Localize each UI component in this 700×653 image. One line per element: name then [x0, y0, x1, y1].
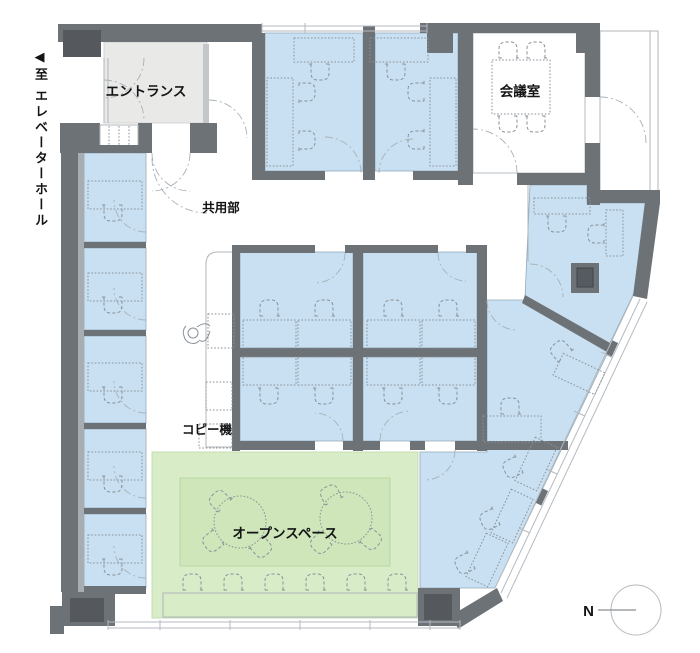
copier-label: コピー機 [182, 422, 233, 437]
copier-icon [206, 382, 232, 410]
open-space-label: オープンスペース [232, 526, 337, 541]
compass-icon: N [583, 585, 661, 635]
meeting-room [473, 33, 585, 173]
entrance-label: エントランス [106, 84, 187, 99]
left-arrow-icon: ◀ [33, 50, 48, 68]
compass-north-label: N [583, 603, 594, 620]
entrance-room [104, 42, 207, 123]
copier-icon [208, 314, 234, 348]
balcony [600, 31, 658, 191]
copier-counter [206, 252, 232, 447]
floor-plan-drawing: N エントランス 会議室 共用部 コピー機 オープンスペース [0, 0, 700, 653]
elevator-hall-text: 至 エレベーターホール [33, 68, 48, 229]
common-area-label: 共用部 [202, 200, 240, 215]
office-room [265, 33, 363, 171]
private-room [84, 153, 146, 242]
floor-plan: N エントランス 会議室 共用部 コピー機 オープンスペース ◀至 エレベーター… [0, 0, 700, 653]
private-room [84, 429, 146, 508]
private-room [84, 336, 146, 423]
office-room [363, 252, 477, 348]
elevator-direction-label: ◀至 エレベーターホール [31, 50, 50, 229]
open-space-rug [180, 478, 390, 566]
private-room [84, 514, 146, 588]
meeting-room-label: 会議室 [500, 83, 541, 99]
office-room [240, 252, 353, 348]
pillar [571, 263, 599, 293]
private-room [84, 248, 146, 330]
